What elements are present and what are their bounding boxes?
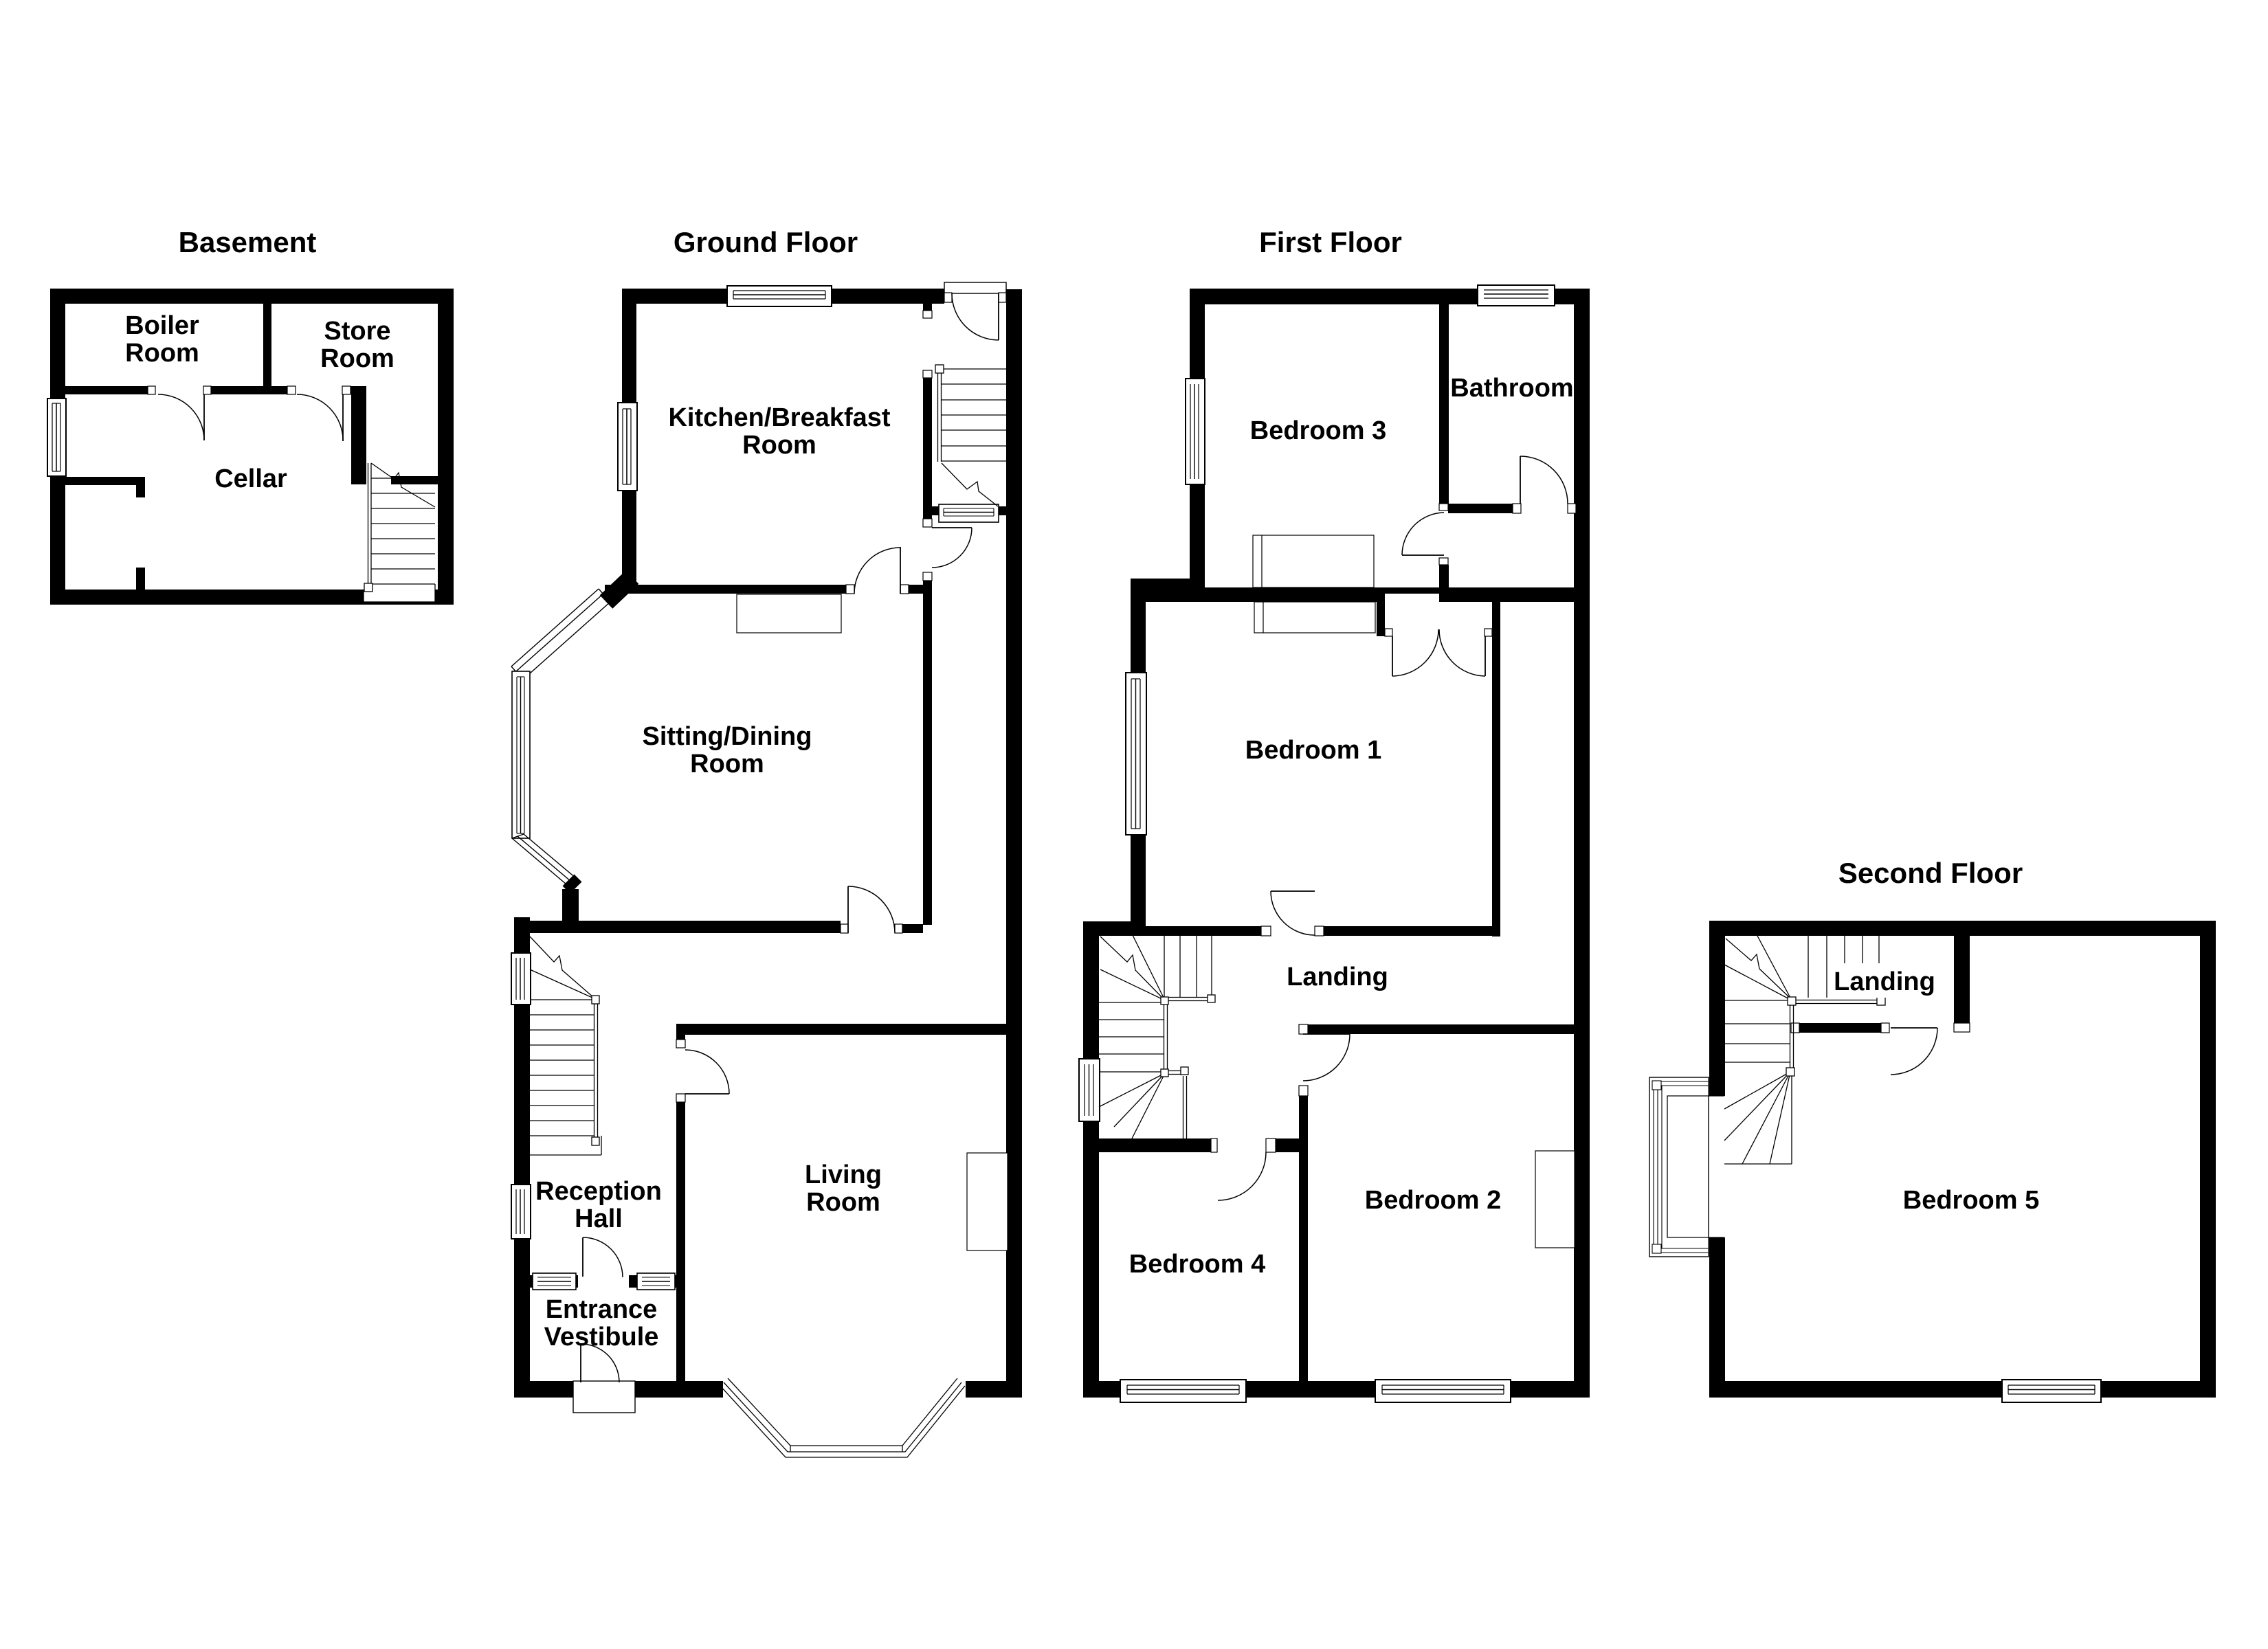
- svg-text:Second Floor: Second Floor: [1838, 857, 2023, 889]
- svg-text:Bedroom 4: Bedroom 4: [1129, 1250, 1265, 1279]
- svg-text:Living: Living: [805, 1160, 882, 1189]
- svg-text:Bedroom 1: Bedroom 1: [1245, 736, 1381, 765]
- svg-text:Vestibule: Vestibule: [544, 1323, 659, 1351]
- svg-text:Room: Room: [806, 1188, 880, 1217]
- svg-text:Reception: Reception: [535, 1177, 662, 1206]
- svg-text:Cellar: Cellar: [214, 464, 287, 493]
- svg-text:Store: Store: [324, 317, 390, 346]
- svg-text:Bedroom 2: Bedroom 2: [1365, 1186, 1501, 1215]
- svg-text:Landing: Landing: [1287, 963, 1388, 991]
- svg-text:Entrance: Entrance: [546, 1295, 658, 1324]
- svg-text:Room: Room: [125, 339, 199, 368]
- svg-text:Bedroom 5: Bedroom 5: [1903, 1186, 2039, 1215]
- svg-text:Room: Room: [320, 344, 394, 373]
- svg-text:First Floor: First Floor: [1259, 226, 1402, 258]
- svg-text:Ground Floor: Ground Floor: [674, 226, 858, 258]
- svg-text:Kitchen/Breakfast: Kitchen/Breakfast: [668, 403, 890, 432]
- svg-text:Room: Room: [690, 750, 764, 778]
- svg-text:Sitting/Dining: Sitting/Dining: [643, 722, 812, 751]
- svg-text:Boiler: Boiler: [125, 311, 199, 340]
- svg-text:Bathroom: Bathroom: [1450, 374, 1573, 403]
- svg-text:Basement: Basement: [179, 226, 317, 258]
- svg-text:Hall: Hall: [575, 1204, 623, 1233]
- svg-text:Room: Room: [742, 431, 816, 460]
- svg-text:Landing: Landing: [1834, 967, 1935, 996]
- svg-text:Bedroom 3: Bedroom 3: [1250, 416, 1386, 445]
